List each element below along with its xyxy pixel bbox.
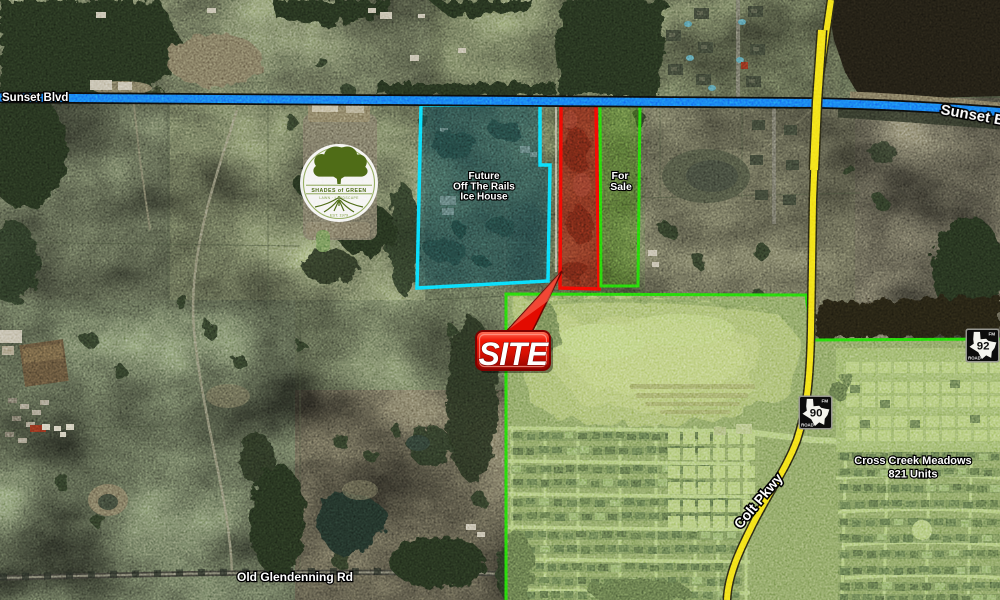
svg-text:FM: FM (988, 332, 995, 337)
svg-text:FM: FM (821, 399, 828, 404)
svg-text:SHADES of GREEN: SHADES of GREEN (311, 188, 366, 194)
svg-text:Old Glendenning Rd: Old Glendenning Rd (237, 570, 353, 584)
svg-text:EST. 1979: EST. 1979 (330, 213, 349, 218)
svg-text:ROAD: ROAD (968, 355, 981, 360)
svg-text:ROAD: ROAD (801, 422, 814, 427)
svg-text:90: 90 (810, 408, 823, 420)
svg-text:SITE: SITE (478, 336, 549, 372)
svg-text:Sunset Blvd: Sunset Blvd (2, 92, 68, 104)
svg-text:92: 92 (977, 341, 990, 353)
